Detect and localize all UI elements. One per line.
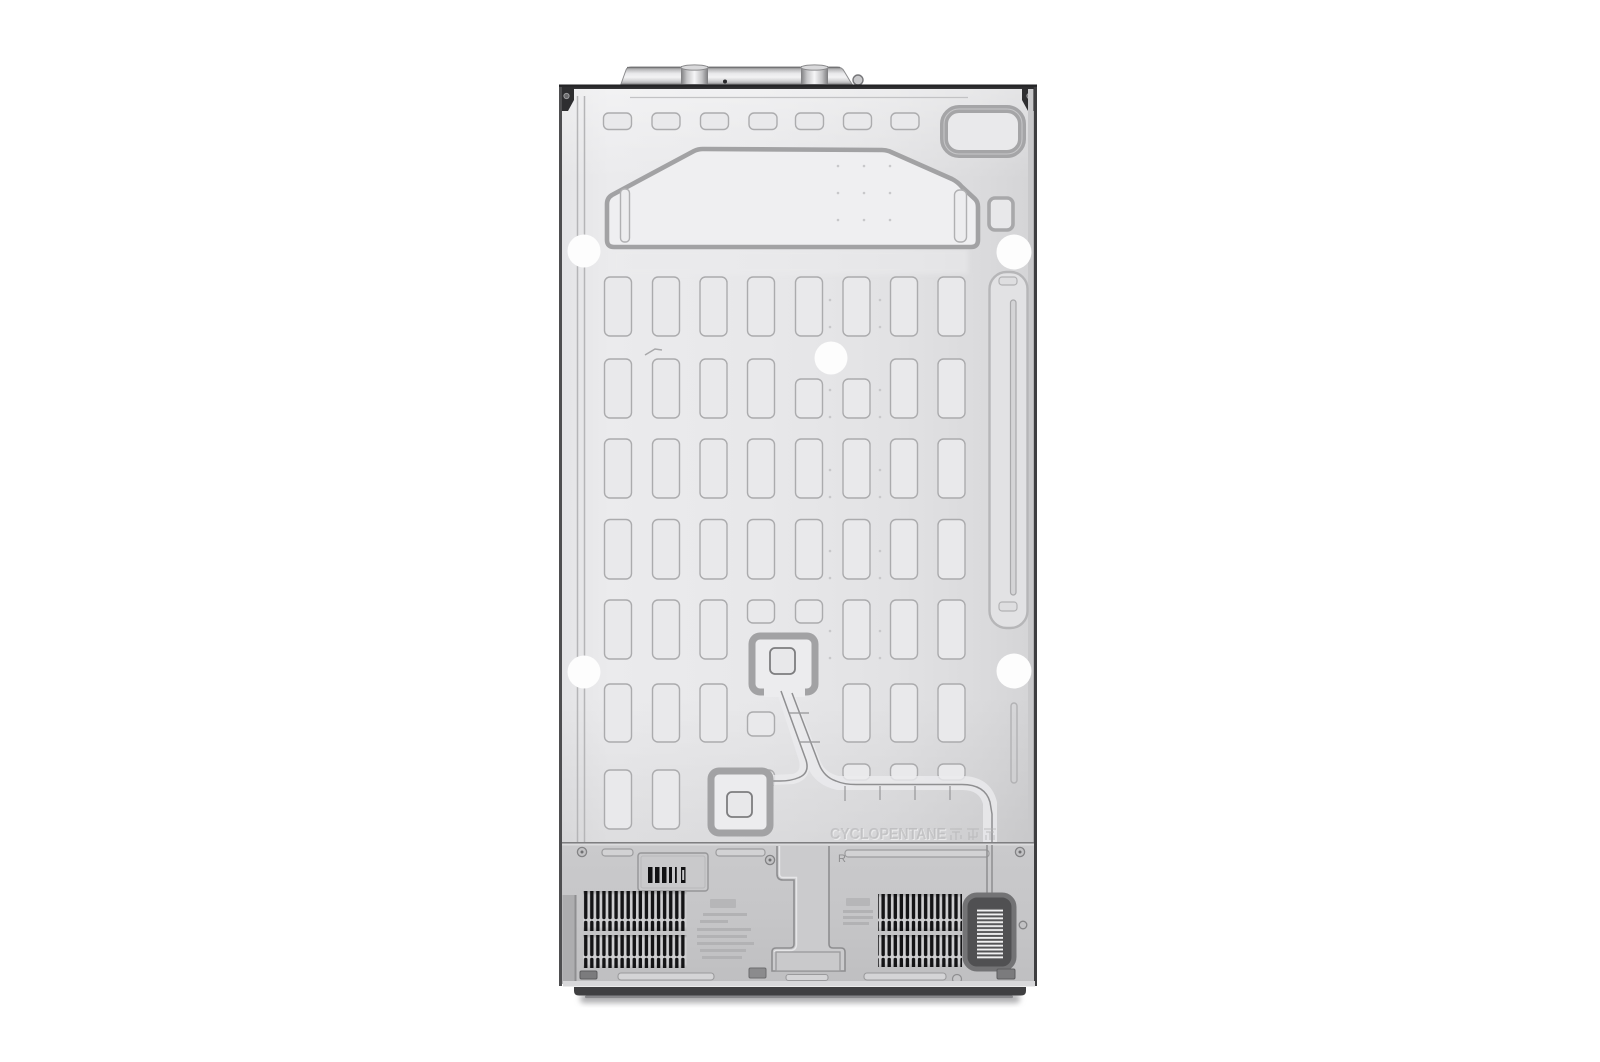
svg-text:CYCLOPENTANE: CYCLOPENTANE <box>830 826 946 843</box>
svg-text:R: R <box>838 853 846 865</box>
